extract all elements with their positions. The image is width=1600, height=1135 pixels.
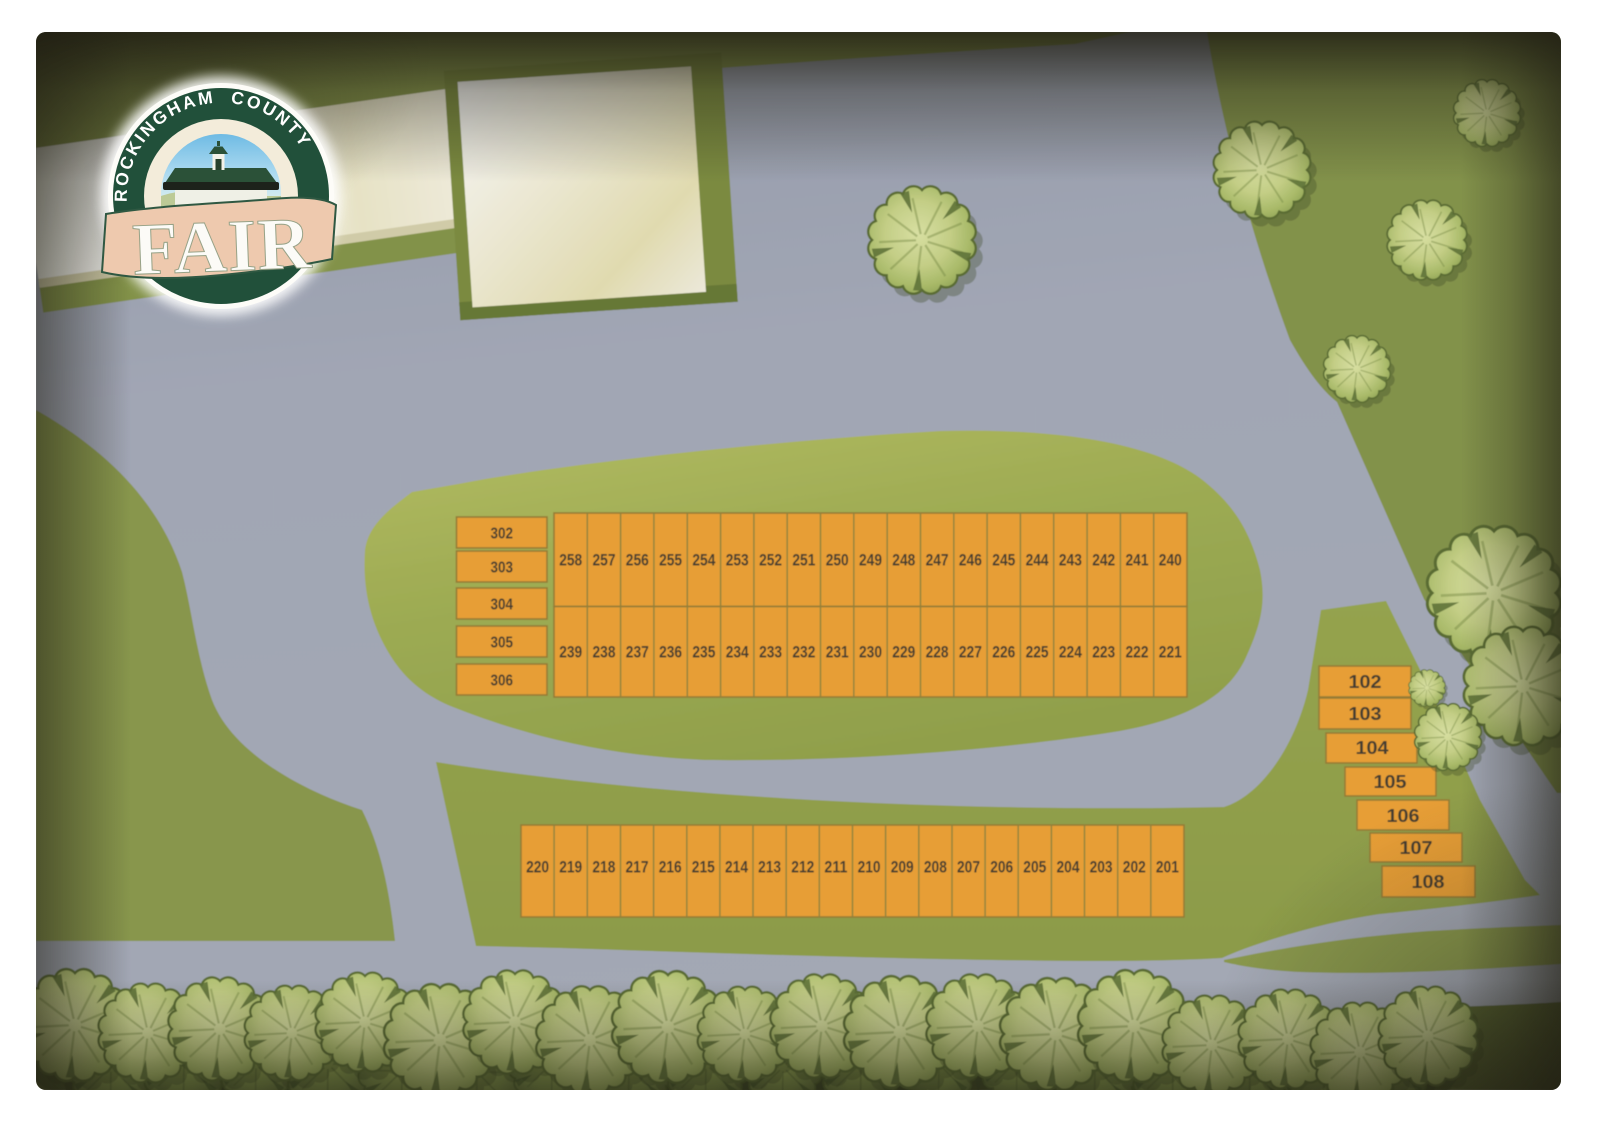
svg-text:FAIR: FAIR: [131, 203, 314, 292]
